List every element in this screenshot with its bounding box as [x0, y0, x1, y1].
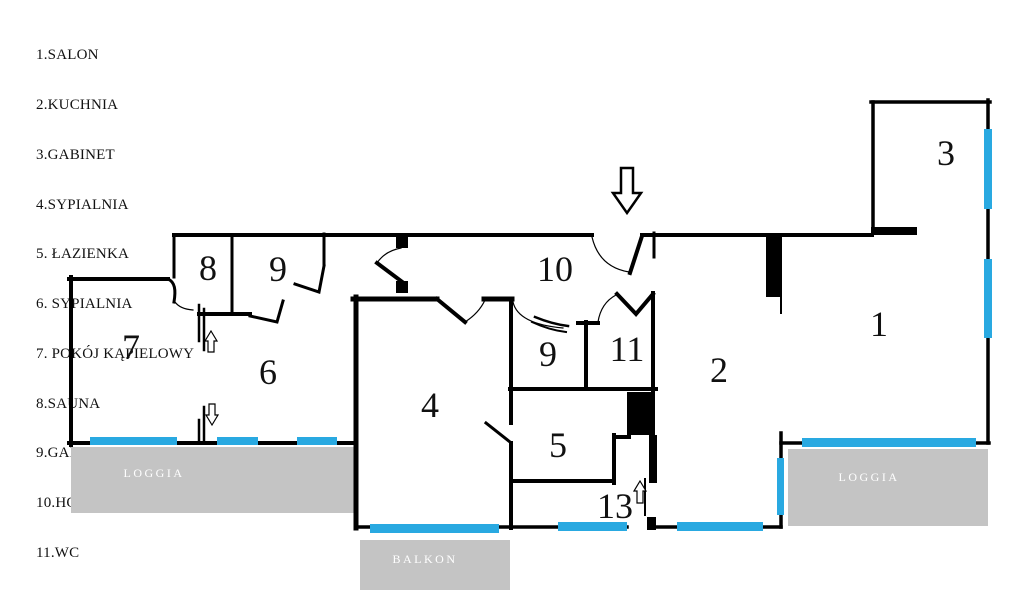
room-label-holl: 10: [537, 249, 573, 289]
outdoor-areas: LOGGIA LOGGIA BALKON: [71, 447, 988, 590]
garderoba9b-door-leaf-2: [532, 322, 566, 332]
loggia-left-area: [71, 447, 354, 513]
garderoba9a-door-leaf: [295, 266, 324, 292]
entrance-door-leaf: [630, 236, 642, 273]
window-strip: [217, 437, 258, 445]
loggia-right-area: [788, 449, 988, 526]
hall-door-arc: [377, 248, 401, 263]
floor-plan-svg: LOGGIA LOGGIA BALKON: [0, 0, 1024, 594]
room-label-sypialnia6: 6: [259, 352, 277, 392]
hall-door-jamb-upper: [396, 235, 408, 248]
window-strip: [984, 259, 992, 338]
room-label-lazienka: 5: [549, 425, 567, 465]
room-label-garderoba9b: 9: [539, 334, 557, 374]
window-strip: [90, 437, 177, 445]
room-label-wc: 11: [610, 329, 645, 369]
sauna-door-arc: [175, 302, 193, 310]
kitchen-shaft: [766, 233, 782, 297]
garderoba9a-lower-door-leaf: [250, 301, 283, 322]
window-strip: [677, 522, 763, 531]
room-label-garderoba9a: 9: [269, 249, 287, 289]
room-label-sypialnia4: 4: [421, 385, 439, 425]
hall-door-leaf: [377, 263, 405, 284]
room4-door-leaf: [437, 299, 465, 322]
window-strip: [370, 524, 499, 533]
balkon-label: BALKON: [393, 552, 458, 566]
wc-door-arc: [598, 295, 616, 322]
room-label-sauna: 8: [199, 248, 217, 288]
window-strip: [777, 458, 784, 515]
laundry-right-wall: [649, 435, 657, 483]
wc-door-leaf: [617, 294, 653, 314]
loggia-right-label: LOGGIA: [839, 470, 900, 484]
loggia-left-label: LOGGIA: [124, 466, 185, 480]
bath-shaft: [627, 392, 655, 435]
window-strip: [297, 437, 337, 445]
down-arrow-icon: [206, 404, 218, 425]
room-label-pralnia: 13: [597, 486, 633, 526]
up-arrow-icon: [205, 331, 217, 352]
window-strip: [802, 438, 976, 447]
window-strip: [984, 129, 992, 209]
room-label-pokoj-kapielowy: 7: [122, 327, 140, 367]
room-label-salon: 1: [870, 304, 888, 344]
entrance-door-arc: [592, 237, 629, 272]
room4-door-arc: [465, 300, 485, 322]
room5-door-leaf: [486, 423, 510, 442]
laundry-door-block: [647, 517, 656, 530]
floor-plan: 1.SALON 2.KUCHNIA 3.GABINET 4.SYPIALNIA …: [0, 0, 1024, 594]
entrance-arrow-icon: [613, 168, 641, 213]
room3-bottom-stub: [871, 227, 917, 235]
room-label-kuchnia: 2: [710, 350, 728, 390]
room-label-gabinet: 3: [937, 133, 955, 173]
